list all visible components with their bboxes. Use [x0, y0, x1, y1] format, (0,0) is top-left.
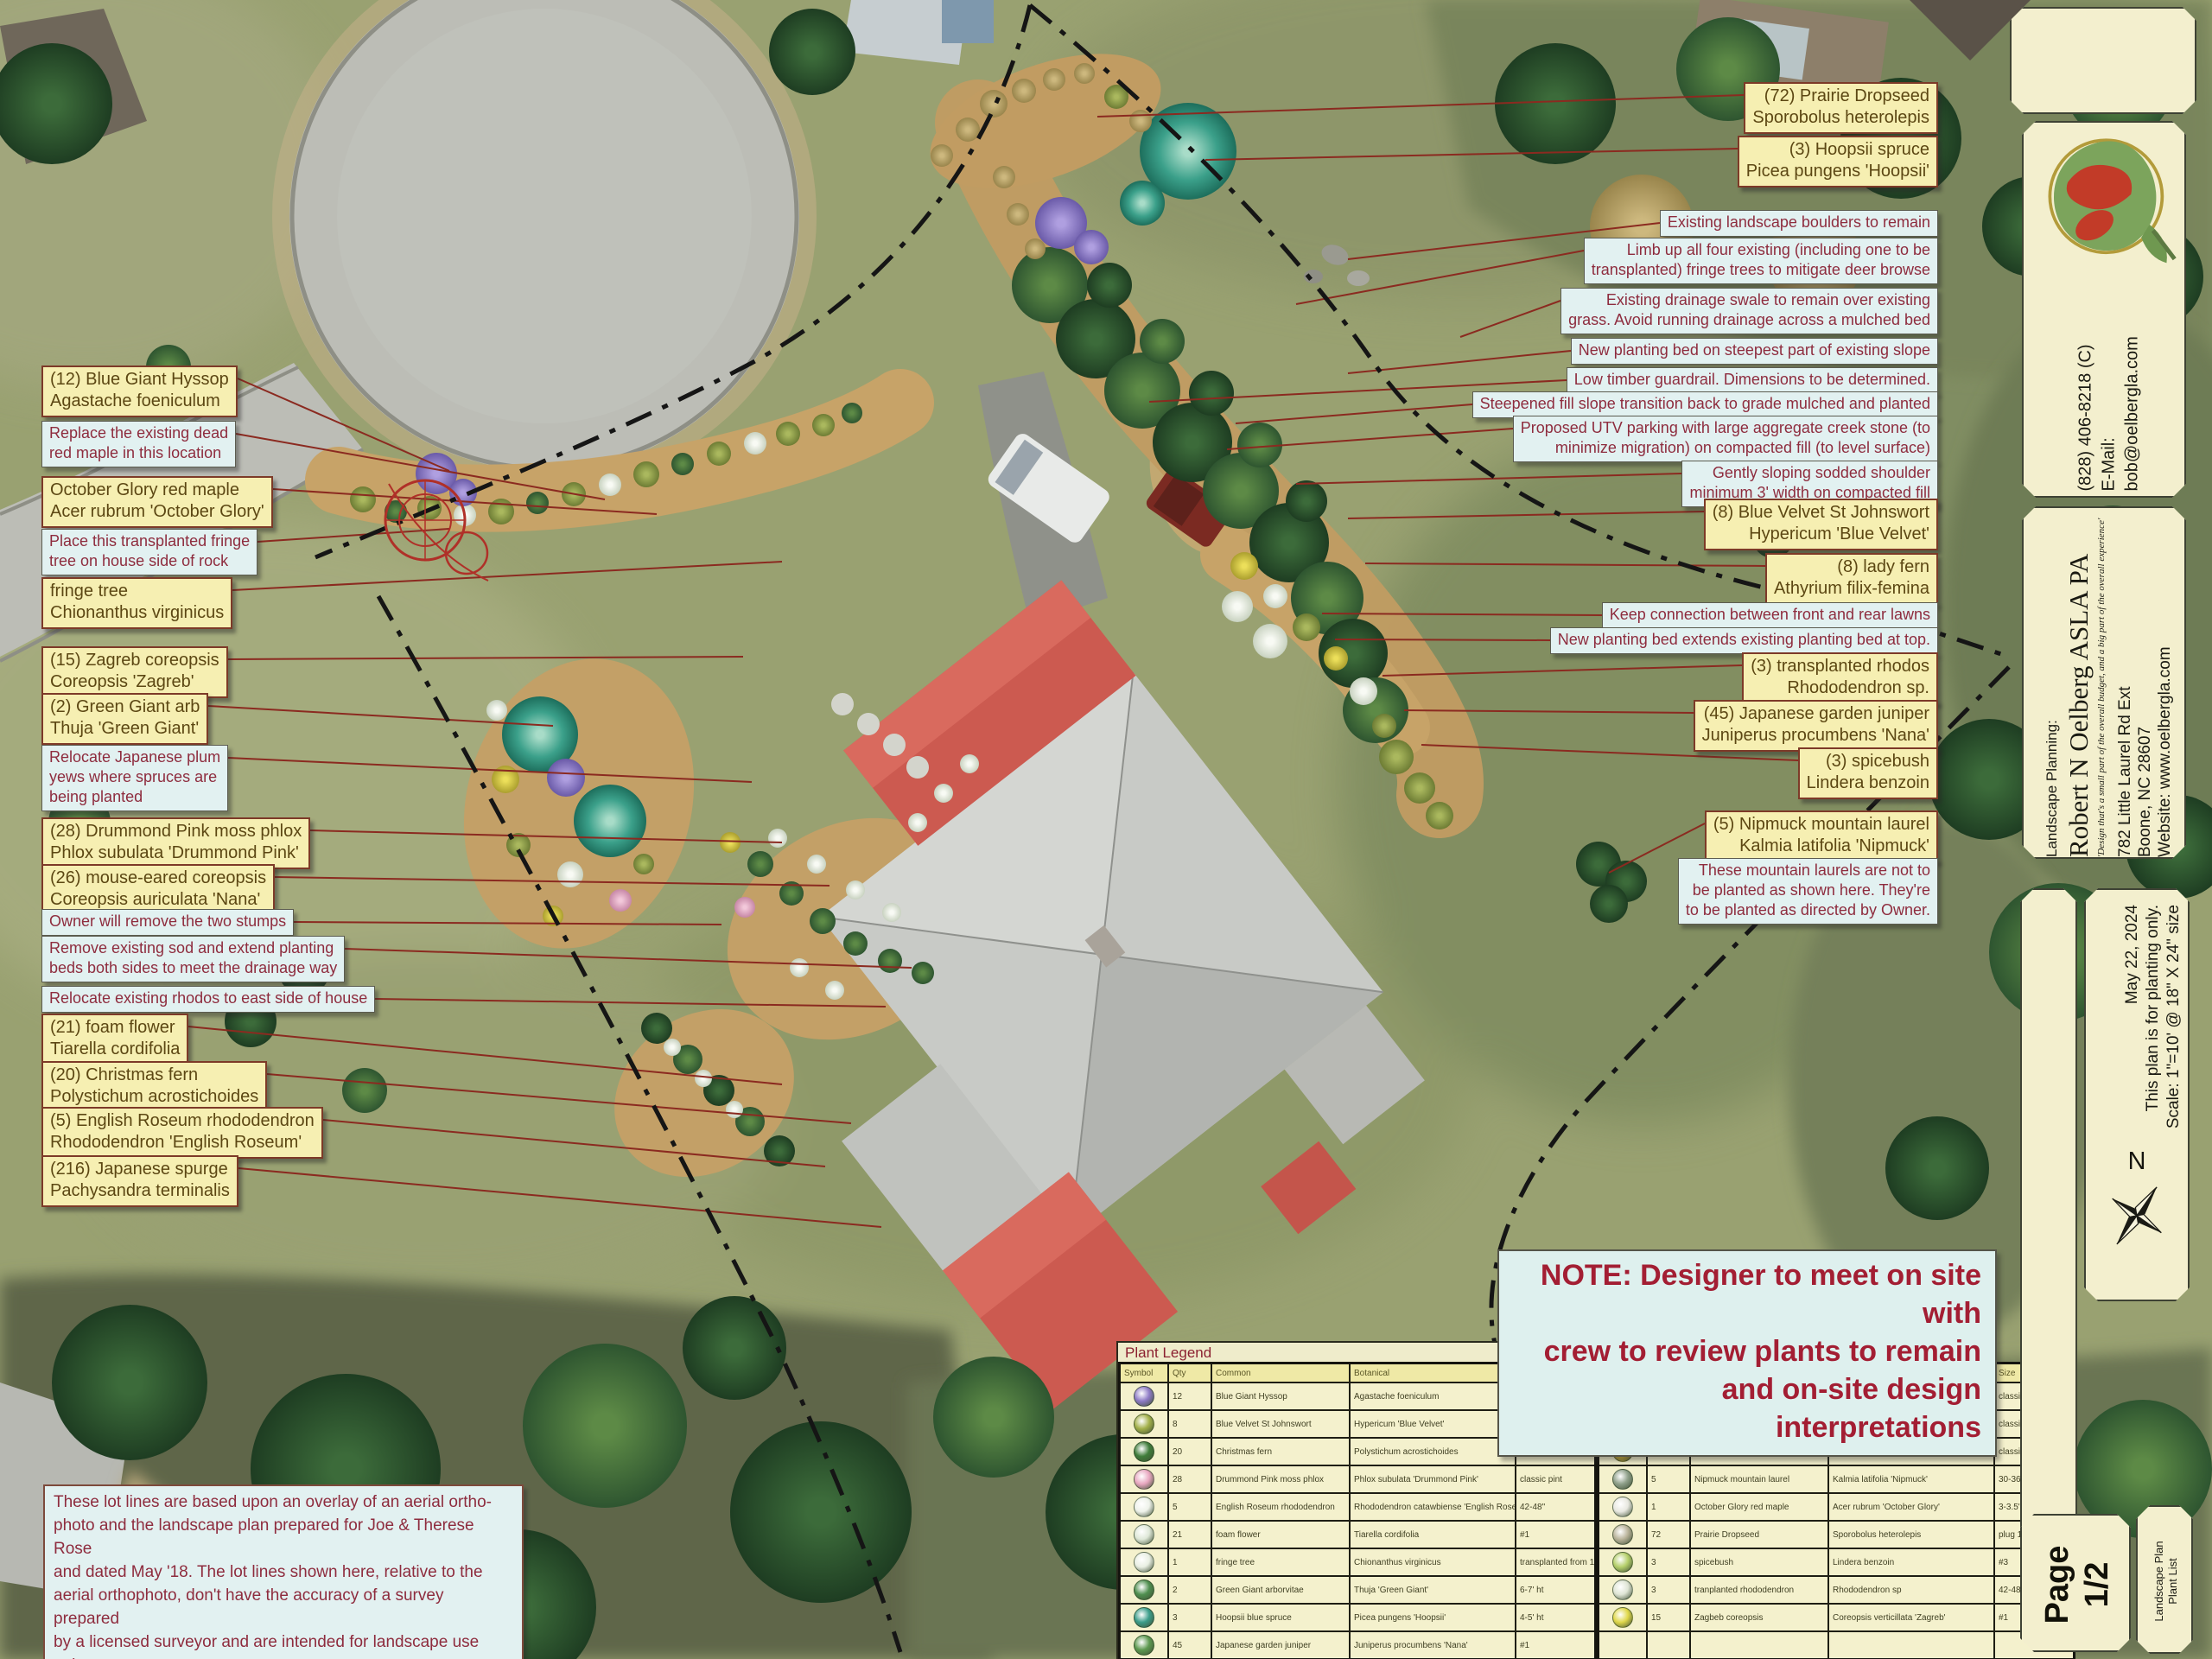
plant-callout: (45) Japanese garden juniperJuniperus pr…: [1694, 700, 1938, 752]
callout-line: New planting bed extends existing planti…: [1558, 630, 1930, 650]
page-label: Page: [2037, 1516, 2077, 1654]
callout-line: Thuja 'Green Giant': [50, 718, 200, 740]
callout-line: Existing drainage swale to remain over e…: [1568, 290, 1930, 310]
text-line: photo and the landscape plan prepared fo…: [54, 1514, 513, 1560]
text-line: and on-site design interpretations: [1513, 1370, 1981, 1446]
callout-line: Juniperus procumbens 'Nana': [1702, 725, 1929, 747]
callout-line: New planting bed on steepest part of exi…: [1579, 340, 1930, 360]
company-logo: [2026, 118, 2184, 292]
note-callout: Existing landscape boulders to remain: [1660, 210, 1938, 237]
plant-callout: (15) Zagreb coreopsisCoreopsis 'Zagreb': [41, 646, 228, 698]
callout-line: beds both sides to meet the drainage way: [49, 958, 337, 978]
text-line: aerial orthophoto, don't have the accura…: [54, 1584, 513, 1630]
plant-callout: (3) Hoopsii sprucePicea pungens 'Hoopsii…: [1738, 136, 1938, 188]
callout-line: grass. Avoid running drainage across a m…: [1568, 310, 1930, 330]
note-callout: Relocate existing rhodos to east side of…: [41, 986, 375, 1013]
note-callout: Place this transplanted fringetree on ho…: [41, 529, 257, 575]
titleblock-blank-panel: [2010, 7, 2196, 114]
callout-line: Hypericum 'Blue Velvet': [1713, 524, 1929, 545]
callout-line: Lindera benzoin: [1807, 772, 1929, 794]
callout-line: (8) lady fern: [1774, 556, 1929, 578]
callout-line: (5) Nipmuck mountain laurel: [1713, 814, 1929, 836]
note-callout: Owner will remove the two stumps: [41, 909, 294, 936]
callout-line: Agastache foeniculum: [50, 391, 229, 412]
plant-callout: (12) Blue Giant HyssopAgastache foenicul…: [41, 365, 238, 417]
plant-callout: (8) Blue Velvet St JohnswortHypericum 'B…: [1704, 499, 1938, 550]
north-arrow-icon: N: [2095, 1149, 2178, 1257]
callout-line: yews where spruces are: [49, 767, 220, 787]
plant-callout: (20) Christmas fernPolystichum acrostich…: [41, 1061, 267, 1113]
text-line: and dated May '18. The lot lines shown h…: [54, 1560, 513, 1584]
text-line: by a licensed surveyor and are intended …: [54, 1630, 513, 1659]
callout-line: Existing landscape boulders to remain: [1668, 213, 1930, 232]
callout-line: Kalmia latifolia 'Nipmuck': [1713, 836, 1929, 857]
designer-tagline: 'Design that's a small part of the overa…: [2096, 505, 2107, 857]
email-address: E-Mail: bob@oelbergla.com: [2097, 280, 2144, 492]
plant-callout: (8) lady fernAthyrium filix-femina: [1765, 553, 1938, 605]
sheet-list-line1: Landscape Plan: [2152, 1507, 2166, 1656]
callout-line: Sporobolus heterolepis: [1752, 107, 1929, 129]
plant-callout: (3) transplanted rhodosRhododendron sp.: [1742, 652, 1938, 704]
callout-line: (45) Japanese garden juniper: [1702, 703, 1929, 725]
callout-line: October Glory red maple: [50, 480, 264, 501]
callout-line: Proposed UTV parking with large aggregat…: [1521, 418, 1930, 438]
callout-line: fringe tree: [50, 581, 224, 602]
callout-line: (26) mouse-eared coreopsis: [50, 868, 266, 889]
plant-callout: (28) Drummond Pink moss phloxPhlox subul…: [41, 817, 310, 869]
sheet-list-line2: Plant List: [2166, 1507, 2180, 1656]
titleblock-contact-panel: (828) 406-8218 (C) E-Mail: bob@oelbergla…: [2022, 121, 2186, 498]
lot-lines-disclaimer: These lot lines are based upon an overla…: [43, 1484, 524, 1659]
callout-line: (8) Blue Velvet St Johnswort: [1713, 502, 1929, 524]
callout-line: (3) Hoopsii spruce: [1746, 139, 1929, 161]
callout-line: to be planted as directed by Owner.: [1686, 900, 1930, 920]
address-line2: Boone, NC 28607: [2135, 505, 2155, 857]
note-callout: Proposed UTV parking with large aggregat…: [1513, 416, 1938, 462]
text-line: NOTE: Designer to meet on site with: [1513, 1256, 1981, 1332]
note-callout: New planting bed on steepest part of exi…: [1571, 338, 1938, 365]
callout-line: Pachysandra terminalis: [50, 1180, 230, 1202]
note-callout: Existing drainage swale to remain over e…: [1560, 288, 1938, 334]
plant-callout: (3) spicebushLindera benzoin: [1798, 747, 1938, 799]
callout-line: Coreopsis auriculata 'Nana': [50, 889, 266, 911]
note-callout: Keep connection between front and rear l…: [1602, 602, 1938, 629]
callout-line: Owner will remove the two stumps: [49, 912, 286, 931]
callout-line: Gently sloping sodded shoulder: [1689, 463, 1930, 483]
callout-line: Place this transplanted fringe: [49, 531, 250, 551]
note-callout: Replace the existing deadred maple in th…: [41, 421, 236, 467]
callout-line: Keep connection between front and rear l…: [1610, 605, 1930, 625]
callout-line: (21) foam flower: [50, 1017, 180, 1039]
callout-line: being planted: [49, 787, 220, 807]
sheet-list-panel: Landscape Plan Plant List: [2136, 1505, 2193, 1654]
callout-line: be planted as shown here. They're: [1686, 880, 1930, 900]
designer-note: NOTE: Designer to meet on site withcrew …: [1497, 1249, 1997, 1457]
designer-name: Robert N Oelberg ASLA PA: [2063, 505, 2094, 857]
callout-line: red maple in this location: [49, 443, 228, 463]
plant-callout: October Glory red mapleAcer rubrum 'Octo…: [41, 476, 273, 528]
callout-line: Remove existing sod and extend planting: [49, 938, 337, 958]
callout-line: tree on house side of rock: [49, 551, 250, 571]
callout-line: (12) Blue Giant Hyssop: [50, 369, 229, 391]
note-callout: Remove existing sod and extend plantingb…: [41, 936, 345, 982]
address-line1: 782 Little Laurel Rd Ext: [2115, 505, 2135, 857]
plant-callout: (216) Japanese spurgePachysandra termina…: [41, 1155, 238, 1207]
titleblock-designer-panel: Landscape Planning: Robert N Oelberg ASL…: [2022, 506, 2186, 859]
landscape-plan-sheet: (12) Blue Giant HyssopAgastache foenicul…: [0, 0, 2212, 1659]
callout-line: (3) transplanted rhodos: [1751, 656, 1929, 677]
callout-line: Low timber guardrail. Dimensions to be d…: [1574, 370, 1930, 390]
callout-line: Phlox subulata 'Drummond Pink': [50, 842, 302, 864]
page-number-panel: Page 1/2: [2020, 1514, 2131, 1652]
callout-line: Steepened fill slope transition back to …: [1480, 394, 1930, 414]
plant-callout: (5) Nipmuck mountain laurelKalmia latifo…: [1705, 810, 1938, 862]
plant-callout: (26) mouse-eared coreopsisCoreopsis auri…: [41, 864, 275, 916]
callout-line: (72) Prairie Dropseed: [1752, 86, 1929, 107]
website: Website: www.oelbergla.com: [2155, 505, 2175, 857]
phone-number: (828) 406-8218 (C): [2074, 280, 2097, 492]
callout-line: (216) Japanese spurge: [50, 1159, 230, 1180]
callout-line: transplanted) fringe trees to mitigate d…: [1592, 260, 1930, 280]
note-callout: Limb up all four existing (including one…: [1584, 238, 1938, 284]
plant-callout: fringe treeChionanthus virginicus: [41, 577, 232, 629]
page-number: 1/2: [2077, 1516, 2117, 1654]
callout-line: Athyrium filix-femina: [1774, 578, 1929, 600]
north-label: N: [2128, 1149, 2146, 1175]
callout-line: Relocate Japanese plum: [49, 747, 220, 767]
callout-line: Relocate existing rhodos to east side of…: [49, 988, 367, 1008]
callout-line: (5) English Roseum rhododendron: [50, 1110, 315, 1132]
callout-line: Chionanthus virginicus: [50, 602, 224, 624]
note-callout: Steepened fill slope transition back to …: [1472, 391, 1938, 418]
callout-line: Coreopsis 'Zagreb': [50, 671, 219, 693]
callout-line: Rhododendron 'English Roseum': [50, 1132, 315, 1154]
callout-line: (2) Green Giant arb: [50, 696, 200, 718]
callout-line: (28) Drummond Pink moss phlox: [50, 821, 302, 842]
callout-line: These mountain laurels are not to: [1686, 861, 1930, 880]
date-scale-panel: May 22, 2024 This plan is for planting o…: [2084, 888, 2190, 1301]
text-line: These lot lines are based upon an overla…: [54, 1491, 513, 1514]
text-line: crew to review plants to remain: [1513, 1332, 1981, 1370]
callout-line: (20) Christmas fern: [50, 1065, 258, 1086]
sheet-title-panel: Landscape Plan: [2020, 888, 2077, 1541]
callout-line: Tiarella cordifolia: [50, 1039, 180, 1060]
note-callout: Relocate Japanese plumyews where spruces…: [41, 745, 228, 811]
callout-line: Polystichum acrostichoides: [50, 1086, 258, 1108]
note-callout: Low timber guardrail. Dimensions to be d…: [1567, 367, 1938, 394]
callout-line: minimize migration) on compacted fill (t…: [1521, 438, 1930, 458]
note-callout: These mountain laurels are not tobe plan…: [1678, 858, 1938, 925]
callout-line: Replace the existing dead: [49, 423, 228, 443]
callout-line: Picea pungens 'Hoopsii': [1746, 161, 1929, 182]
callout-line: (15) Zagreb coreopsis: [50, 650, 219, 671]
plant-callout: (72) Prairie DropseedSporobolus heterole…: [1744, 82, 1938, 134]
plant-callout: (2) Green Giant arbThuja 'Green Giant': [41, 693, 208, 745]
callout-line: Limb up all four existing (including one…: [1592, 240, 1930, 260]
note-callout: New planting bed extends existing planti…: [1550, 627, 1938, 654]
callout-line: Rhododendron sp.: [1751, 677, 1929, 699]
callout-line: (3) spicebush: [1807, 751, 1929, 772]
planning-label: Landscape Planning:: [2044, 505, 2061, 857]
callout-line: Acer rubrum 'October Glory': [50, 501, 264, 523]
plant-callout: (21) foam flowerTiarella cordifolia: [41, 1014, 188, 1065]
plant-callout: (5) English Roseum rhododendronRhododend…: [41, 1107, 323, 1159]
